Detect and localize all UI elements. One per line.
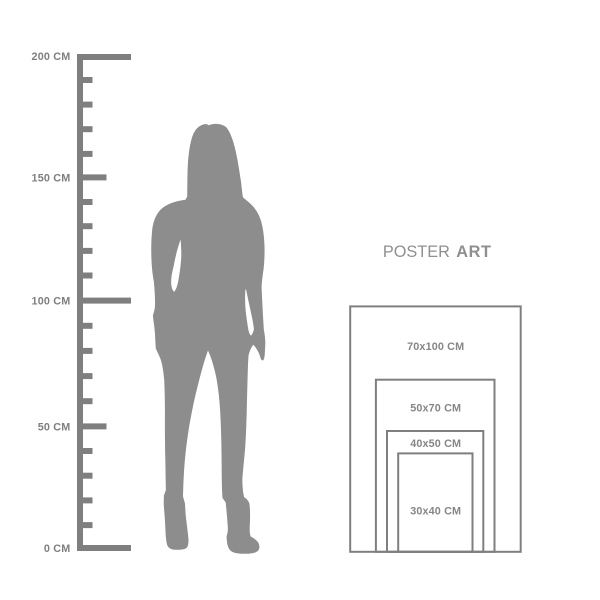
- svg-text:50x70 CM: 50x70 CM: [410, 402, 461, 414]
- svg-text:30x40 CM: 30x40 CM: [410, 505, 461, 517]
- svg-text:40x50 CM: 40x50 CM: [410, 438, 461, 450]
- svg-text:100 CM: 100 CM: [31, 296, 70, 308]
- svg-text:50 CM: 50 CM: [38, 421, 71, 433]
- svg-text:150 CM: 150 CM: [31, 172, 70, 184]
- svg-text:POSTER: POSTER: [383, 243, 450, 261]
- svg-text:200 CM: 200 CM: [31, 51, 70, 63]
- svg-text:0 CM: 0 CM: [44, 543, 71, 555]
- svg-text:70x100 CM: 70x100 CM: [407, 341, 464, 353]
- svg-text:ART: ART: [456, 243, 491, 261]
